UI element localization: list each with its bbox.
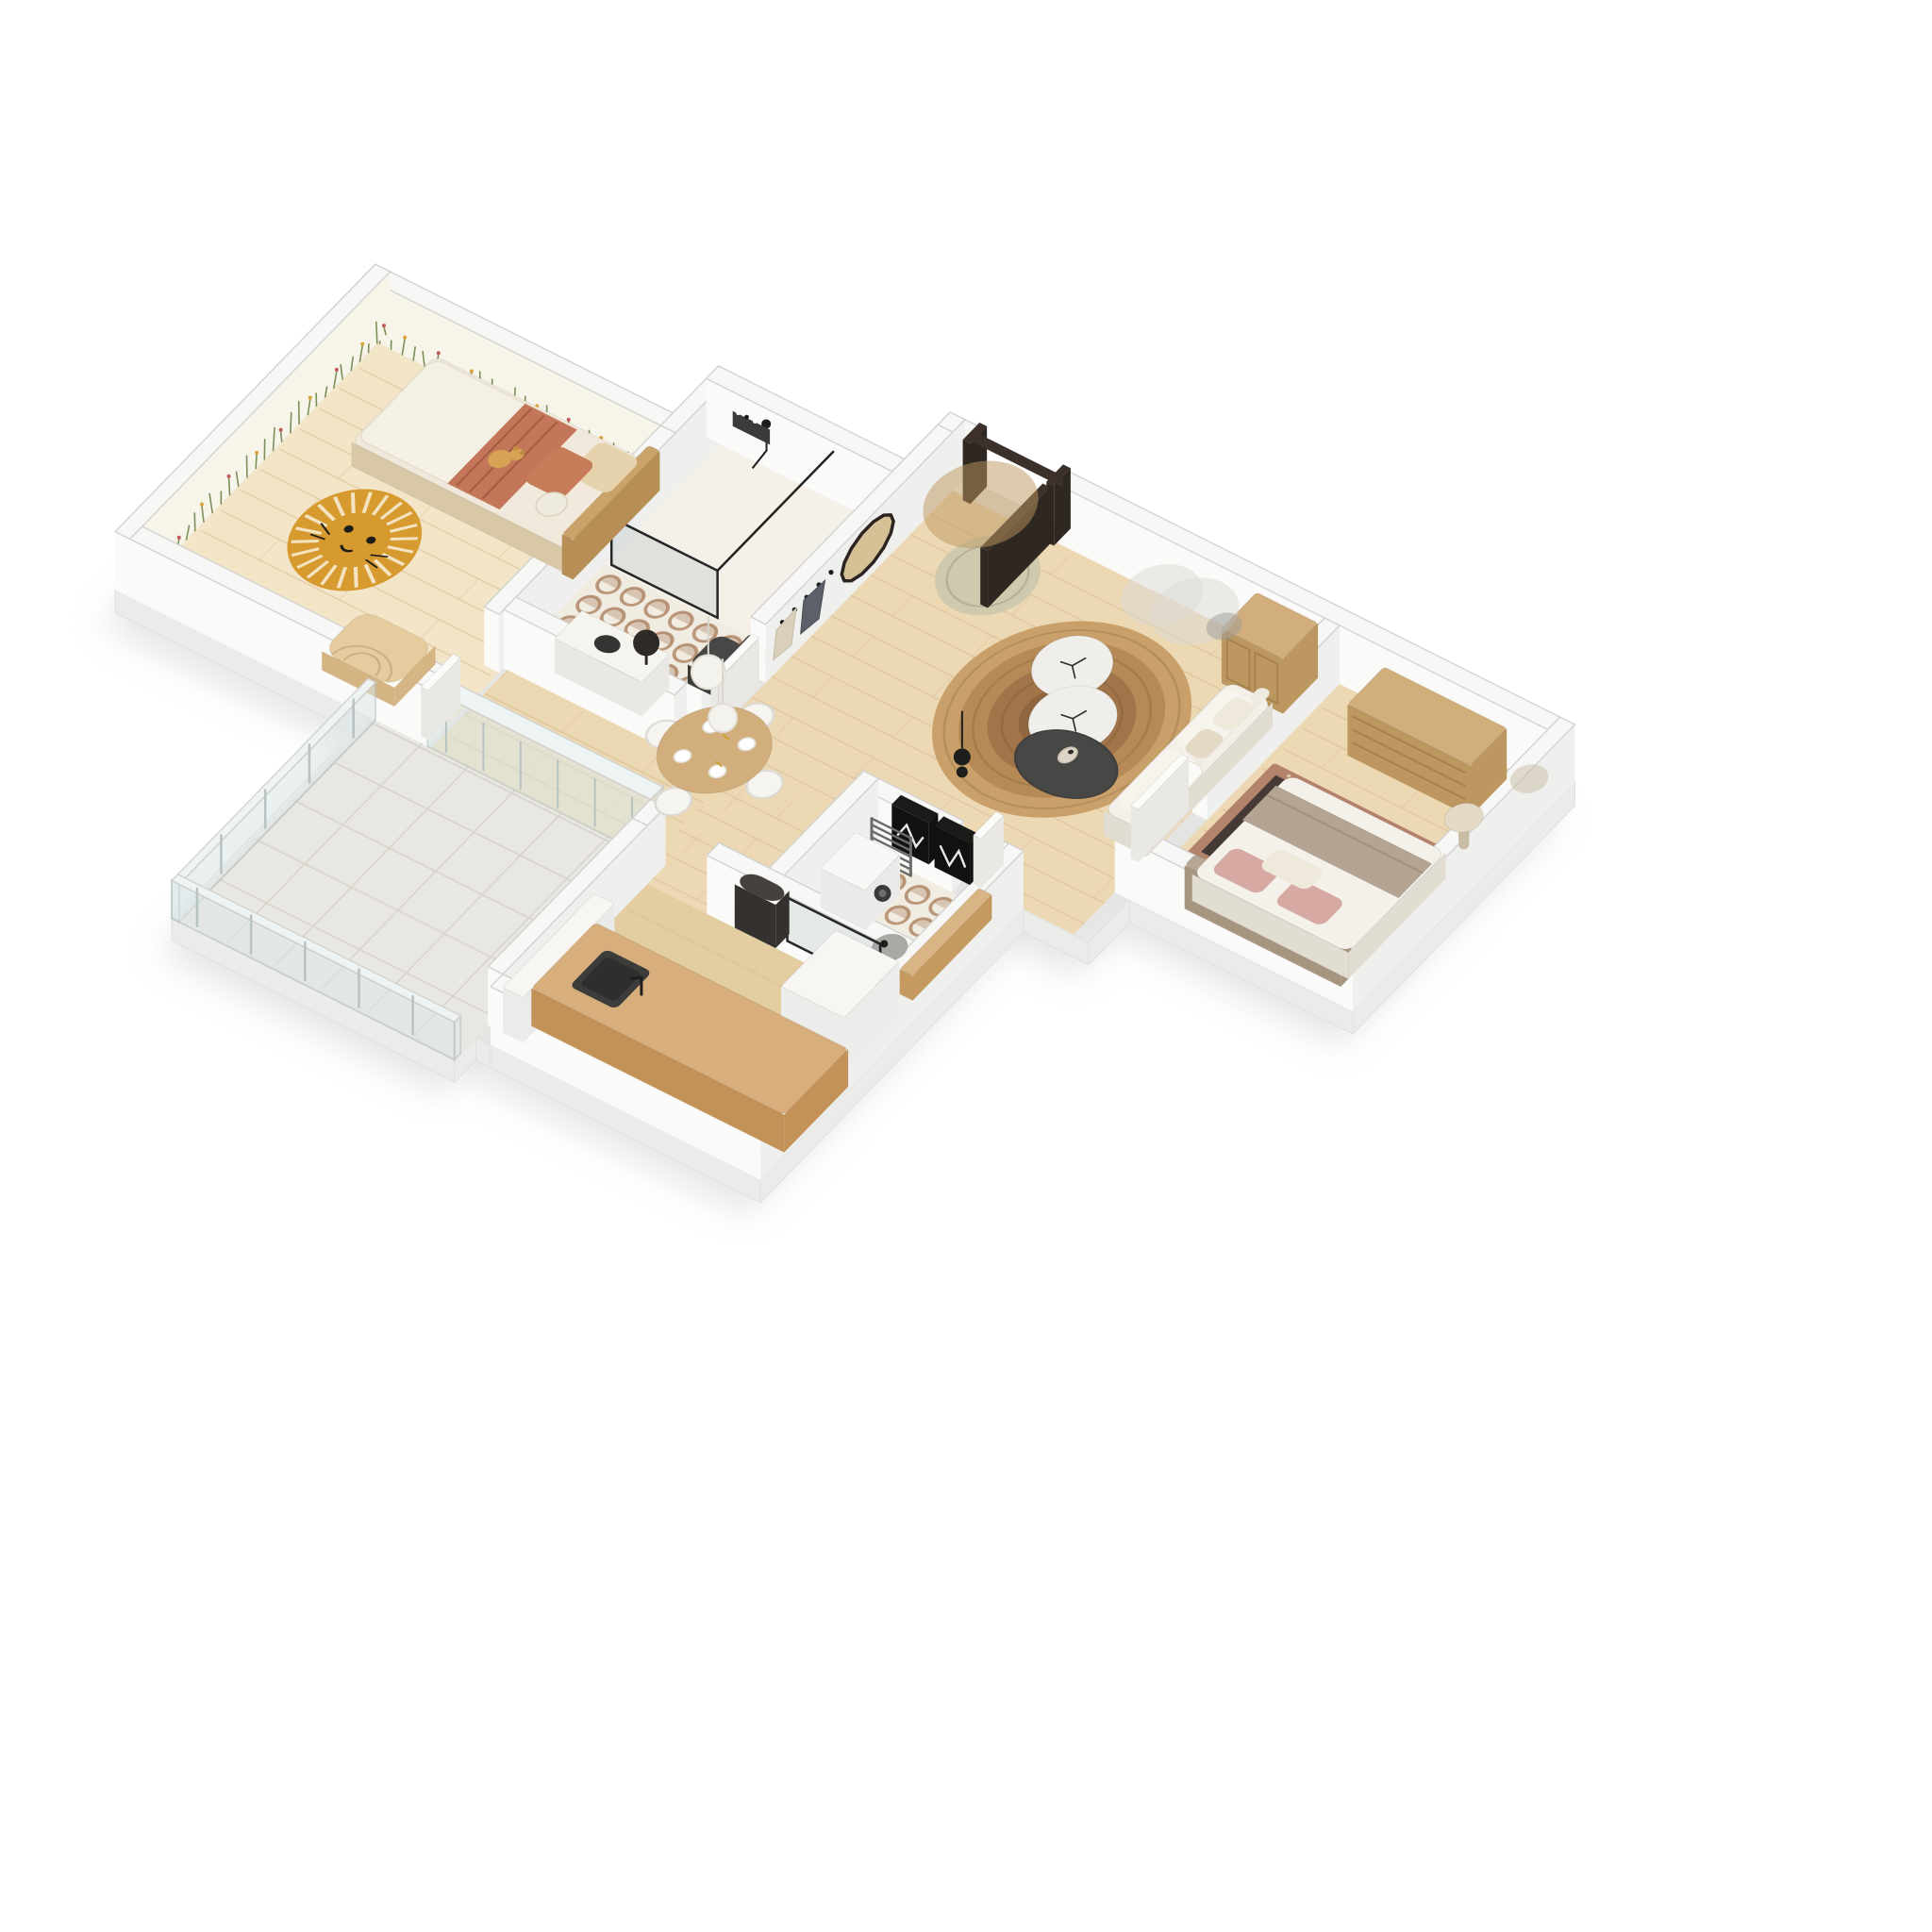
apartment-axonometric-scene [0, 0, 1932, 1932]
floor-plan-render [0, 0, 1932, 1932]
